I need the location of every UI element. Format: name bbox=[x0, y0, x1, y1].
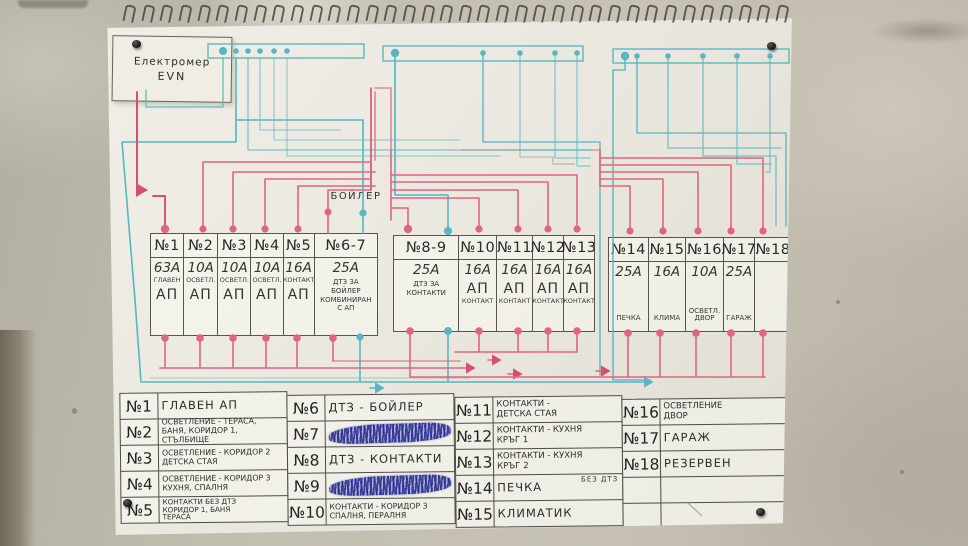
breaker-amp: 16А bbox=[535, 262, 561, 278]
legend-row: №4ОСВЕТЛЕНИЕ - КОРИДОР 3 КУХНЯ, СПАЛНЯ bbox=[121, 470, 287, 498]
breaker-number: №13 bbox=[564, 236, 594, 260]
spiral-loop bbox=[216, 4, 230, 23]
circuit-description: РЕЗЕРВЕН bbox=[661, 450, 786, 476]
breaker-number: №10 bbox=[459, 236, 496, 260]
spiral-loop bbox=[701, 4, 715, 23]
circuit-number: №18 bbox=[623, 451, 661, 476]
breaker-type: АП bbox=[223, 287, 245, 303]
push-pin bbox=[756, 508, 765, 516]
breaker-type: АП bbox=[537, 281, 559, 297]
spiral-loop bbox=[570, 4, 584, 23]
breaker-tag: ГЛАВЕН bbox=[154, 277, 181, 284]
breaker-tag: КОНТАКТ bbox=[563, 298, 595, 305]
circuit-number bbox=[623, 503, 661, 528]
meter-label-evn: EVN bbox=[157, 69, 186, 82]
breaker-amp: 25А bbox=[413, 262, 439, 278]
spiral-loop bbox=[757, 4, 771, 23]
legend-row: №16ОСВЕТЛЕНИЕ ДВОР bbox=[622, 398, 785, 426]
breaker-column: №2 10АОСВЕТЛ.АП bbox=[184, 234, 218, 335]
spiral-loop bbox=[663, 4, 677, 23]
breaker-tag: КЛИМА bbox=[654, 315, 680, 323]
breaker-panel-2: №8-9 25АДТЗ ЗА КОНТАКТИ №10 16ААПКОНТАКТ… bbox=[393, 235, 595, 332]
circuit-description: ДТЗ - КОНТАКТИ bbox=[326, 446, 454, 472]
circuit-description: ОСВЕТЛЕНИЕ - КОРИДОР 2 ДЕТСКА СТАЯ bbox=[159, 444, 287, 470]
breaker-number: №14 bbox=[609, 238, 648, 262]
photo-of-electrical-panel-diagram: Електромер EVN БОЙЛЕР №1 63АГЛАВЕНАП №2 … bbox=[0, 0, 968, 546]
breaker-number: №15 bbox=[649, 238, 685, 262]
breaker-type: АП bbox=[568, 281, 590, 297]
wall-smudge bbox=[872, 18, 968, 44]
breaker-column: №6-7 25АДТЗ ЗА БОЙЛЕР КОМБИНИРАН С АП bbox=[315, 234, 377, 335]
circuit-number: №14 bbox=[456, 475, 494, 500]
circuit-description: ГАРАЖ bbox=[661, 424, 786, 450]
circuit-description: КОНТАКТИ - ДЕТСКА СТАЯ bbox=[493, 396, 621, 422]
push-pin bbox=[132, 40, 141, 48]
circuit-number bbox=[623, 477, 661, 502]
circuit-description bbox=[661, 502, 786, 528]
spiral-binding bbox=[124, 5, 788, 27]
circuit-description: КОНТАКТИ - КУХНЯ КРЪГ 2 bbox=[494, 448, 622, 474]
spiral-loop bbox=[607, 4, 621, 23]
breaker-tag: КОНТАКТ bbox=[532, 298, 564, 305]
wall-corner-shadow bbox=[0, 330, 36, 546]
circuit-description: ОСВЕТЛЕНИЕ ДВОР bbox=[660, 398, 785, 424]
legend-row: №11КОНТАКТИ - ДЕТСКА СТАЯ bbox=[455, 396, 621, 424]
breaker-type: АП bbox=[467, 281, 489, 297]
circuit-description: КЛИМАТИК bbox=[494, 500, 622, 526]
circuit-description: ОСВЕТЛЕНИЕ - КОРИДОР 3 КУХНЯ, СПАЛНЯ bbox=[159, 470, 287, 496]
diagram-paper-sheet: Електромер EVN БОЙЛЕР №1 63АГЛАВЕНАП №2 … bbox=[104, 10, 794, 537]
breaker-column: №16 10АОСВЕТЛ. ДВОР bbox=[686, 238, 724, 331]
legend-row: №7 bbox=[288, 420, 454, 448]
circuit-description: КОНТАКТИ БЕЗ ДТЗ КОРИДОР 1, БАНЯ ТЕРАСА bbox=[159, 496, 287, 522]
spiral-loop bbox=[682, 4, 696, 23]
circuit-number: №17 bbox=[623, 425, 661, 450]
breaker-amp: 16А bbox=[285, 260, 311, 276]
circuit-number: №1 bbox=[120, 393, 158, 418]
spiral-loop bbox=[365, 4, 379, 23]
circuit-description: КОНТАКТИ - КУХНЯ КРЪГ 1 bbox=[494, 422, 622, 448]
wall-smudge bbox=[18, 0, 88, 8]
breaker-column: №10 16ААПКОНТАКТ bbox=[459, 236, 497, 331]
breaker-column: №5 16АКОНТАКТАП bbox=[284, 234, 315, 335]
breaker-amp: 16А bbox=[566, 262, 592, 278]
breaker-tag: ОСВЕТЛ. bbox=[186, 277, 215, 284]
spiral-loop bbox=[290, 4, 304, 23]
breaker-amp: 10А bbox=[691, 264, 717, 280]
legend-row: №17ГАРАЖ bbox=[623, 424, 786, 452]
breaker-number: №5 bbox=[284, 234, 314, 258]
breaker-number: №11 bbox=[497, 236, 532, 260]
breaker-amp: 16А bbox=[654, 264, 680, 280]
breaker-type: АП bbox=[190, 287, 212, 303]
wall-speck bbox=[900, 470, 904, 474]
spiral-loop bbox=[719, 4, 733, 23]
breaker-number: №4 bbox=[251, 234, 282, 258]
breaker-number: №16 bbox=[686, 238, 723, 262]
breaker-amp: 25А bbox=[333, 260, 359, 276]
circuit-number: №13 bbox=[456, 449, 494, 474]
spiral-loop bbox=[458, 4, 472, 23]
spiral-loop bbox=[775, 4, 789, 23]
wall-speck bbox=[836, 300, 840, 304]
spiral-loop bbox=[234, 4, 248, 23]
breaker-column: №11 16ААПКОНТАКТ bbox=[497, 236, 533, 331]
ink-scribble bbox=[328, 422, 451, 445]
circuit-number: №6 bbox=[287, 395, 325, 420]
spiral-loop bbox=[346, 4, 360, 23]
breaker-amp: 10А bbox=[188, 260, 214, 276]
breaker-column: №12 16ААПКОНТАКТ bbox=[533, 236, 564, 331]
spiral-loop bbox=[440, 4, 454, 23]
boiler-label: БОЙЛЕР bbox=[318, 191, 394, 202]
breaker-amp: 25А bbox=[615, 264, 641, 280]
legend-table-11-15: №11КОНТАКТИ - ДЕТСКА СТАЯ №12КОНТАКТИ - … bbox=[454, 395, 623, 528]
spiral-loop bbox=[421, 4, 435, 23]
breaker-number: №18 bbox=[755, 238, 791, 262]
breaker-column: №18 bbox=[755, 238, 791, 331]
push-pin bbox=[123, 499, 132, 507]
breaker-description: ДТЗ ЗА БОЙЛЕР КОМБИНИРАН С АП bbox=[320, 278, 371, 313]
spiral-loop bbox=[178, 4, 192, 23]
breaker-tag: ОСВЕТЛ. bbox=[252, 277, 281, 284]
spiral-loop bbox=[384, 4, 398, 23]
breaker-column: №8-9 25АДТЗ ЗА КОНТАКТИ bbox=[394, 236, 459, 331]
spiral-loop bbox=[141, 4, 155, 23]
breaker-tag: КОНТАКТ bbox=[499, 298, 531, 305]
breaker-number: №3 bbox=[218, 234, 250, 258]
legend-row: №15КЛИМАТИК bbox=[456, 500, 622, 527]
spiral-loop bbox=[477, 4, 491, 23]
breaker-column: №14 25АПЕЧКА bbox=[609, 238, 649, 331]
spiral-loop bbox=[160, 4, 174, 23]
breaker-tag: КОНТАКТ bbox=[283, 277, 315, 284]
legend-row bbox=[623, 476, 786, 504]
spiral-loop bbox=[253, 4, 267, 23]
legend-row: №9 bbox=[288, 472, 454, 500]
spiral-loop bbox=[514, 4, 528, 23]
circuit-description bbox=[661, 476, 786, 502]
legend-row: №3ОСВЕТЛЕНИЕ - КОРИДОР 2 ДЕТСКА СТАЯ bbox=[121, 444, 287, 472]
circuit-number: №3 bbox=[121, 445, 159, 470]
breaker-amp: 10А bbox=[254, 260, 280, 276]
circuit-number: №16 bbox=[622, 399, 660, 424]
breaker-number: №1 bbox=[151, 234, 183, 258]
spiral-loop bbox=[122, 4, 136, 23]
breaker-type: АП bbox=[288, 287, 310, 303]
breaker-column: №17 25АГАРАЖ bbox=[724, 238, 755, 331]
breaker-type: АП bbox=[156, 287, 178, 303]
breaker-column: №15 16АКЛИМА bbox=[649, 238, 686, 331]
breaker-amp: 25А bbox=[726, 264, 752, 280]
breaker-amp: 16А bbox=[501, 262, 527, 278]
legend-row: №14ПЕЧКАБЕЗ ДТЗ bbox=[456, 474, 622, 502]
spiral-loop bbox=[533, 4, 547, 23]
spiral-loop bbox=[272, 4, 286, 23]
circuit-number: №11 bbox=[455, 397, 493, 422]
breaker-number: №17 bbox=[724, 238, 754, 262]
legend-row: №12КОНТАКТИ - КУХНЯ КРЪГ 1 bbox=[456, 422, 622, 450]
circuit-description: ПЕЧКАБЕЗ ДТЗ bbox=[494, 474, 622, 500]
breaker-description: ДТЗ ЗА КОНТАКТИ bbox=[407, 280, 446, 298]
circuit-number: №8 bbox=[288, 447, 326, 472]
legend-table-6-10: №6ДТЗ - БОЙЛЕР №7 №8ДТЗ - КОНТАКТИ №9 №1… bbox=[286, 393, 455, 526]
circuit-note: БЕЗ ДТЗ bbox=[581, 476, 618, 484]
breaker-panel-1: №1 63АГЛАВЕНАП №2 10АОСВЕТЛ.АП №3 10АОСВ… bbox=[150, 233, 378, 336]
spiral-loop bbox=[495, 4, 509, 23]
breaker-tag: ПЕЧКА bbox=[616, 315, 640, 323]
legend-row: №8ДТЗ - КОНТАКТИ bbox=[288, 446, 454, 474]
circuit-description: КОНТАКТИ - КОРИДОР 3 СПАЛНЯ, ПЕРАЛНЯ bbox=[326, 498, 454, 524]
breaker-number: №6-7 bbox=[315, 234, 377, 258]
spiral-loop bbox=[328, 4, 342, 23]
circuit-description: ДТЗ - БОЙЛЕР bbox=[325, 394, 453, 420]
circuit-number: №7 bbox=[288, 421, 326, 446]
spiral-loop bbox=[309, 4, 323, 23]
breaker-number: №2 bbox=[184, 234, 217, 258]
legend-row: №5КОНТАКТИ БЕЗ ДТЗ КОРИДОР 1, БАНЯ ТЕРАС… bbox=[121, 496, 287, 523]
breaker-tag: ОСВЕТЛ. ДВОР bbox=[689, 308, 720, 323]
breaker-type: АП bbox=[256, 287, 278, 303]
circuit-description: ОСВЕТЛЕНИЕ - ТЕРАСА, БАНЯ, КОРИДОР 1, СТ… bbox=[159, 418, 287, 444]
breaker-column: №3 10АОСВЕТЛ.АП bbox=[218, 234, 251, 335]
breaker-number: №12 bbox=[533, 236, 563, 260]
legend-row: №13КОНТАКТИ - КУХНЯ КРЪГ 2 bbox=[456, 448, 622, 476]
circuit-number: №15 bbox=[456, 501, 494, 526]
legend-row: №2ОСВЕТЛЕНИЕ - ТЕРАСА, БАНЯ, КОРИДОР 1, … bbox=[121, 418, 287, 446]
breaker-tag: КОНТАКТ bbox=[462, 298, 494, 305]
spiral-loop bbox=[402, 4, 416, 23]
push-pin bbox=[767, 42, 776, 50]
spiral-loop bbox=[645, 4, 659, 23]
breaker-tag: ОСВЕТЛ. bbox=[220, 277, 249, 284]
legend-row: №1ГЛАВЕН АП bbox=[120, 392, 286, 420]
circuit-number: №4 bbox=[121, 471, 159, 496]
breaker-amp: 16А bbox=[465, 262, 491, 278]
spiral-loop bbox=[738, 4, 752, 23]
electricity-meter-box: Електромер EVN bbox=[112, 35, 233, 103]
breaker-number: №8-9 bbox=[394, 236, 458, 260]
circuit-description: ГЛАВЕН АП bbox=[158, 392, 286, 418]
circuit-number: №9 bbox=[288, 473, 326, 498]
circuit-description-text: ПЕЧКА bbox=[497, 481, 542, 494]
ink-scribble bbox=[329, 474, 452, 497]
breaker-panel-3: №14 25АПЕЧКА №15 16АКЛИМА №16 10АОСВЕТЛ.… bbox=[608, 237, 792, 332]
legend-table-1-5: №1ГЛАВЕН АП №2ОСВЕТЛЕНИЕ - ТЕРАСА, БАНЯ,… bbox=[119, 391, 288, 524]
circuit-number: №12 bbox=[456, 423, 494, 448]
legend-row: №6ДТЗ - БОЙЛЕР bbox=[287, 394, 453, 422]
spiral-loop bbox=[589, 4, 603, 23]
breaker-tag: ГАРАЖ bbox=[726, 315, 752, 323]
breaker-column: №4 10АОСВЕТЛ.АП bbox=[251, 234, 283, 335]
breaker-amp: 63А bbox=[154, 260, 180, 276]
breaker-type: АП bbox=[503, 281, 525, 297]
breaker-amp: 10А bbox=[221, 260, 247, 276]
circuit-number: №10 bbox=[288, 499, 326, 524]
spiral-loop bbox=[197, 4, 211, 23]
spiral-loop bbox=[551, 4, 565, 23]
breaker-column: №1 63АГЛАВЕНАП bbox=[151, 234, 184, 335]
meter-label: Електромер bbox=[134, 55, 211, 68]
wall-speck bbox=[72, 408, 77, 414]
spiral-loop bbox=[626, 4, 640, 23]
circuit-description bbox=[326, 472, 454, 498]
legend-row: №18РЕЗЕРВЕН bbox=[623, 450, 786, 478]
circuit-description bbox=[326, 420, 454, 446]
breaker-column: №13 16ААПКОНТАКТ bbox=[564, 236, 594, 331]
circuit-number: №2 bbox=[121, 419, 159, 444]
legend-row: №10КОНТАКТИ - КОРИДОР 3 СПАЛНЯ, ПЕРАЛНЯ bbox=[288, 498, 454, 525]
